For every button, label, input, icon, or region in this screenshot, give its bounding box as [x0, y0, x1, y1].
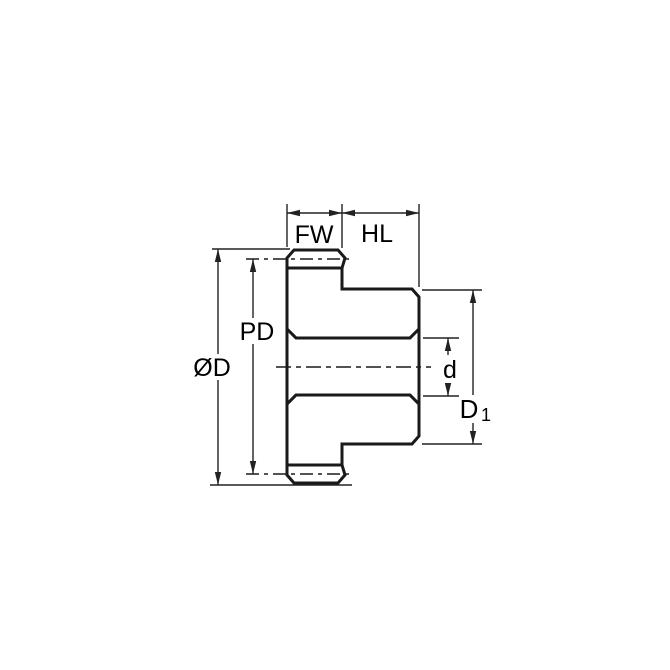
- arrowhead-pd-down: [250, 461, 256, 474]
- dim-pitch-diameter: PD: [240, 259, 275, 474]
- dim-bore-diameter: d: [443, 338, 457, 396]
- label-hub-diameter-subscript: 1: [481, 405, 491, 425]
- label-face-width: FW: [295, 221, 334, 249]
- label-bore-diameter: d: [443, 356, 457, 384]
- arrowhead-d1-down: [470, 431, 476, 444]
- dim-hub-length: HL: [342, 210, 419, 248]
- label-hub-diameter: D: [460, 394, 479, 424]
- label-pitch-diameter: PD: [240, 318, 275, 346]
- arrowhead-fw-left: [287, 210, 300, 216]
- dim-hub-diameter: D 1: [460, 290, 491, 444]
- dim-outside-diameter: ØD: [193, 249, 231, 485]
- gear-body-lower-section: [287, 395, 419, 465]
- arrowhead-hl-left: [342, 210, 355, 216]
- arrowhead-od-up: [215, 249, 221, 262]
- label-hub-length: HL: [361, 220, 393, 248]
- gear-drawing-canvas: FW HL ØD PD: [0, 0, 670, 670]
- arrowhead-d-up: [445, 338, 451, 351]
- label-outside-diameter: ØD: [193, 354, 231, 382]
- arrowhead-pd-up: [250, 259, 256, 272]
- centerlines: [246, 259, 431, 474]
- arrowhead-d-down: [445, 383, 451, 396]
- gear-body-upper-section: [287, 268, 419, 338]
- arrowhead-od-down: [215, 472, 221, 485]
- arrowhead-d1-up: [470, 290, 476, 303]
- arrowhead-fw-right: [329, 210, 342, 216]
- dim-face-width: FW: [287, 210, 342, 249]
- gear-dimension-diagram: FW HL ØD PD: [0, 0, 670, 670]
- arrowhead-hl-right: [406, 210, 419, 216]
